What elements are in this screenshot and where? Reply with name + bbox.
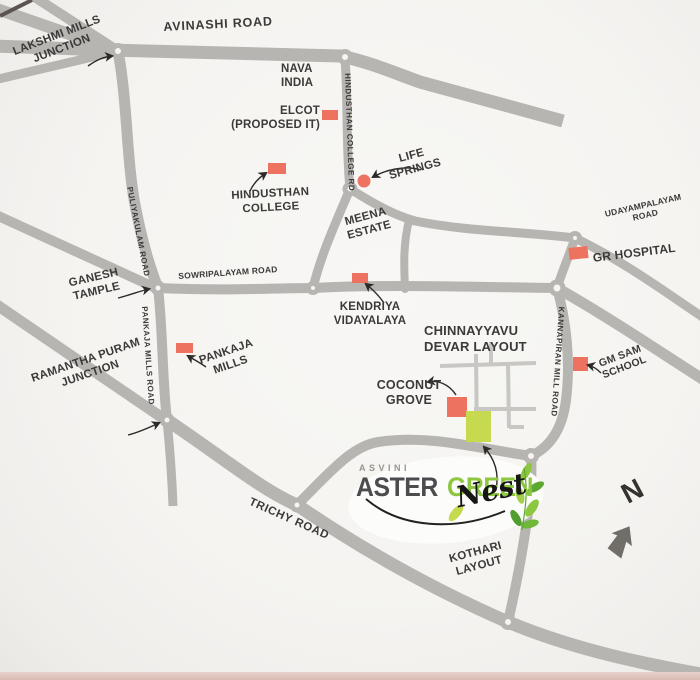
roundabout-site	[526, 451, 537, 462]
marker-coconut-grove	[447, 397, 467, 417]
marker-pankaja-mills	[176, 343, 193, 353]
logo-name-primary: ASTER	[356, 472, 438, 503]
roundabout-lakshmi	[113, 46, 124, 57]
roundabout-sowripalayam-mid	[309, 284, 318, 293]
marker-elcot	[322, 110, 338, 120]
scan-edge-strip	[0, 672, 700, 680]
landmark-label-line: KENDRIYA	[333, 301, 407, 315]
landmark-markers	[176, 110, 589, 417]
marker-gm-sam	[573, 357, 588, 371]
roundabout-udayampalayam	[571, 234, 580, 243]
road-pankaja-mills	[158, 288, 167, 420]
layout-street	[508, 362, 509, 428]
landmark-label-kendriya-vidayalaya: KENDRIYA VIDAYALAYA	[333, 301, 407, 328]
landmark-label-line: INDIA	[281, 77, 313, 91]
landmark-label-elcot: ELCOT (PROPOSED IT)	[228, 105, 320, 132]
roundabout-ramantha	[162, 415, 172, 425]
landmark-label-line: DEVAR LAYOUT	[424, 339, 527, 355]
road-below-r12	[167, 420, 173, 506]
landmark-label-line: CHINNAYYAVU	[424, 323, 527, 339]
marker-life-springs	[358, 175, 371, 188]
roundabout-sowripalayam-west	[153, 283, 163, 293]
marker-hindusthan-college	[268, 163, 286, 174]
landmark-label-line: COCONUT	[370, 378, 448, 393]
landmark-label-hindusthan-college: HINDUSTHAN COLLEGE	[228, 186, 313, 217]
road-sowripalayam	[158, 286, 557, 289]
landmark-label-line: GROVE	[370, 393, 448, 408]
north-arrow-icon	[603, 520, 640, 560]
road-meena-branch	[404, 220, 409, 289]
landmark-label-coconut-grove: COCONUT GROVE	[370, 378, 448, 408]
layout-street	[440, 363, 536, 366]
landmark-label-chinnayyavu: CHINNAYYAVU DEVAR LAYOUT	[424, 323, 527, 356]
landmark-label-nava-india: NAVA INDIA	[281, 63, 313, 90]
roundabout-trichy-branch	[292, 500, 302, 510]
roundabout-avinashi-bend	[340, 52, 351, 63]
landmark-label-line: NAVA	[281, 63, 313, 77]
landmark-label-line: (PROPOSED IT)	[228, 119, 320, 133]
landmark-label-line: VIDAYALAYA	[333, 315, 407, 329]
marker-project-site	[466, 411, 491, 442]
marker-gr-hospital	[568, 246, 588, 260]
arrow-ramantha	[128, 423, 159, 435]
landmark-label-line: ELCOT	[228, 105, 320, 119]
roundabout-gr-hospital	[551, 282, 563, 294]
marker-kendriya	[352, 273, 368, 283]
roundabout-kothari	[503, 617, 514, 628]
location-map: AVINASHI ROAD LAKSHMI MILLS JUNCTION NAV…	[0, 0, 700, 680]
